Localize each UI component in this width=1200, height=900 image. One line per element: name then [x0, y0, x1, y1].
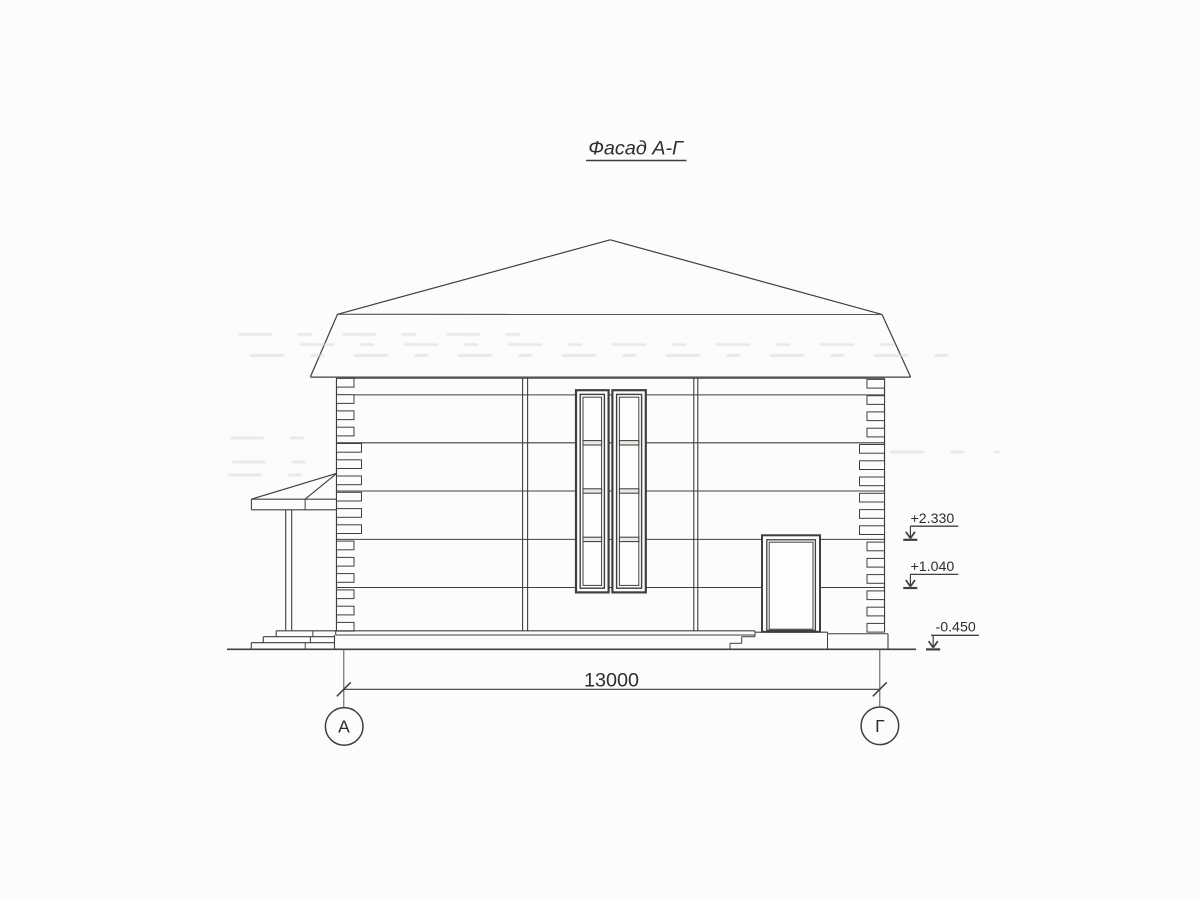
- svg-text:+2.330: +2.330: [911, 511, 955, 527]
- svg-text:Г: Г: [875, 716, 885, 736]
- svg-text:А: А: [338, 717, 350, 737]
- svg-text:-0.450: -0.450: [936, 620, 976, 636]
- svg-text:+1.040: +1.040: [911, 559, 955, 575]
- svg-text:Фасад А-Г: Фасад А-Г: [588, 138, 684, 160]
- svg-text:13000: 13000: [584, 670, 639, 692]
